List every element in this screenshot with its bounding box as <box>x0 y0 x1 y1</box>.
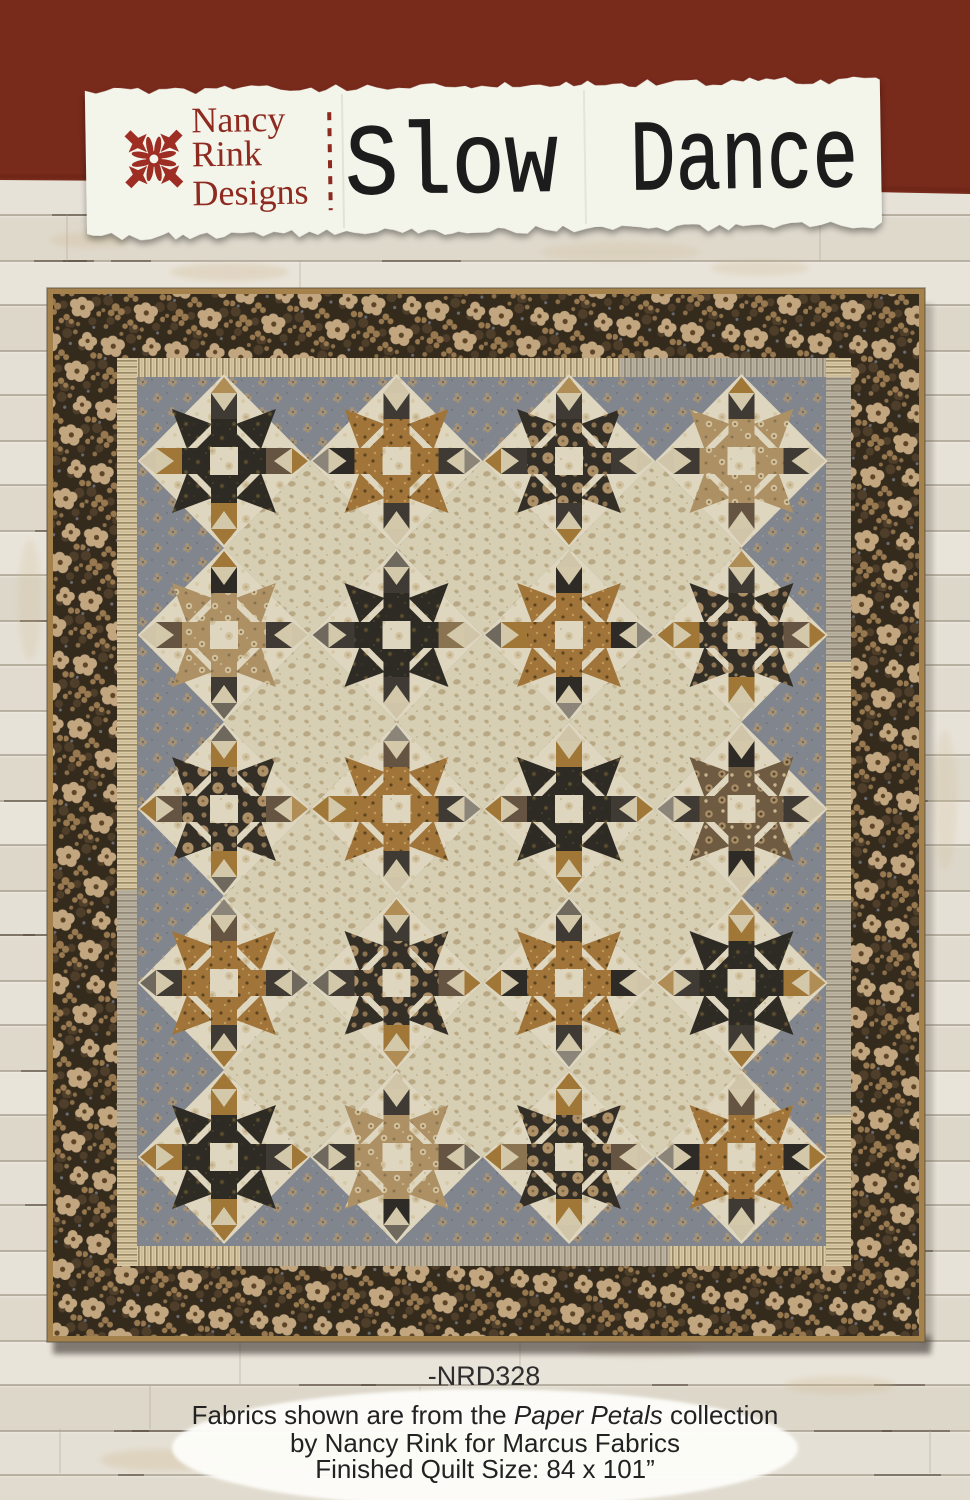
svg-text:Slow: Slow <box>344 108 559 225</box>
svg-text:Designs: Designs <box>192 172 309 214</box>
svg-text:Dance: Dance <box>629 103 859 221</box>
svg-text:Finished Quilt Size: 84 x 101”: Finished Quilt Size: 84 x 101” <box>315 1454 655 1484</box>
svg-text:Rink: Rink <box>192 133 263 174</box>
svg-text:Fabrics shown are from the Pap: Fabrics shown are from the Paper Petals … <box>192 1400 779 1430</box>
svg-text:-NRD328: -NRD328 <box>428 1361 541 1391</box>
